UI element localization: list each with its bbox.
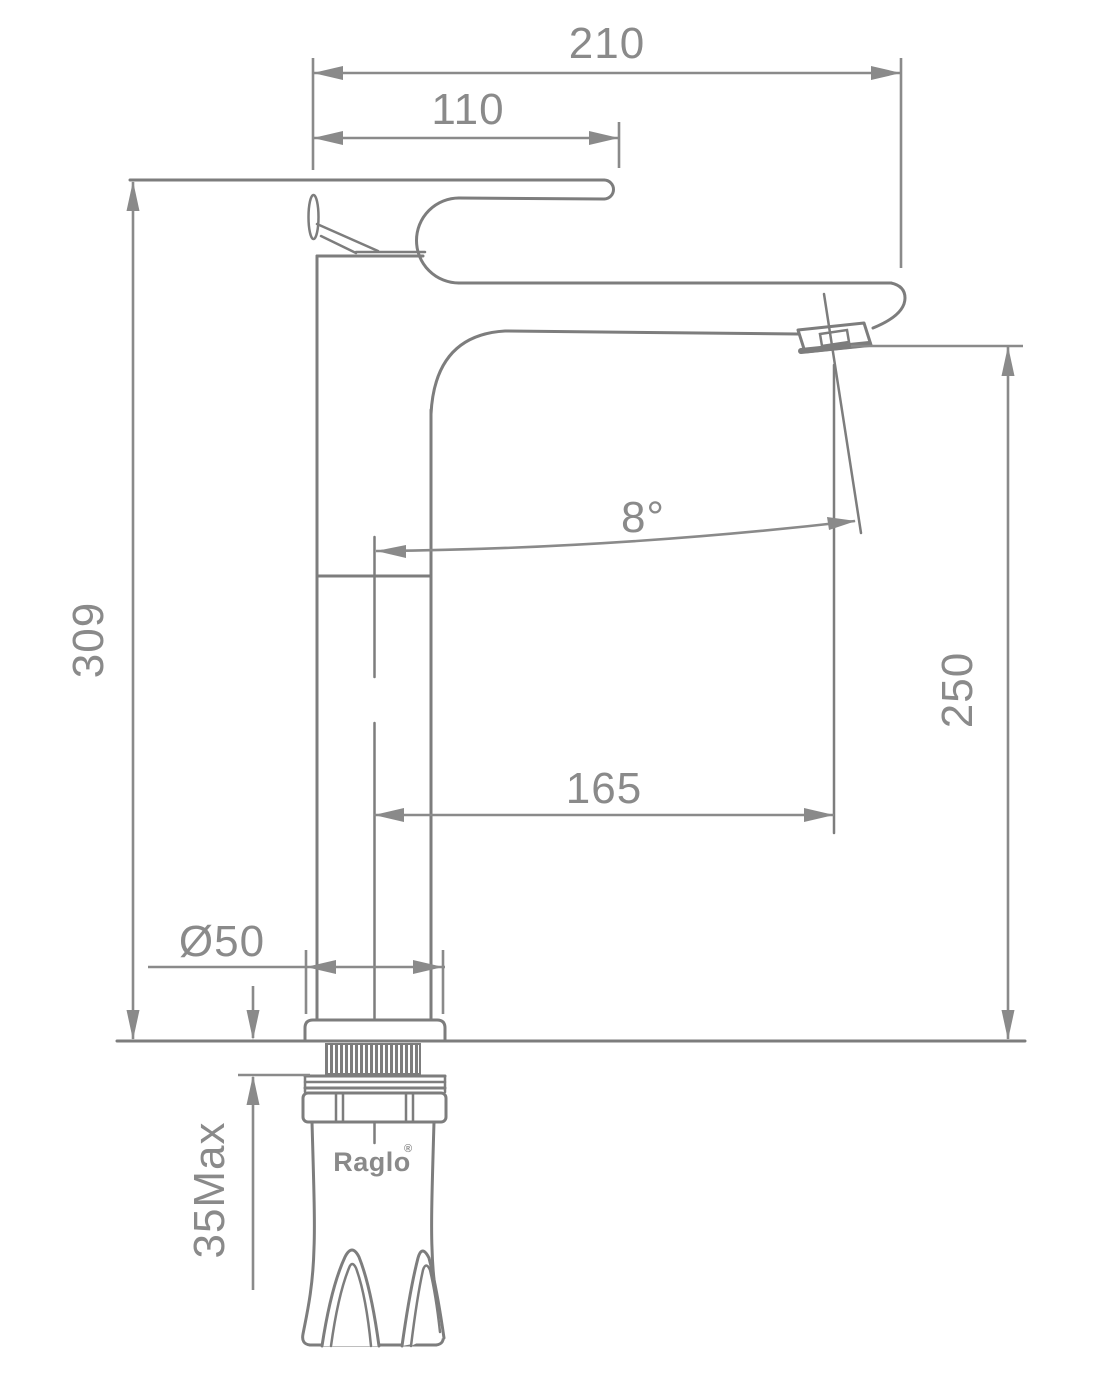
dim-110-arrow-left [313,131,343,145]
dim-210-arrow-left [313,66,343,80]
dim-250-arrow-top [1002,346,1015,376]
handle-underside [459,198,604,199]
dim-250-arrow-bottom [1002,1010,1015,1040]
lock-nut [303,1093,446,1122]
brand-registered-mark: ® [404,1143,412,1155]
dim-angle-arrow-right [827,517,856,530]
dimension-overall-length: 210 [313,19,901,268]
spout-underside [431,331,798,414]
dim-165-arrow-left [374,808,404,822]
spout-tip-curve [873,283,905,328]
handle-body-curve [417,198,460,283]
connector-left-edge [303,1122,315,1345]
dimension-total-height: 309 [64,181,140,1040]
dim-309-arrow-top [127,181,140,211]
dim-165-arrow-right [804,808,834,822]
dimension-spout-height: 250 [851,346,1023,1040]
dimension-spout-angle: 8° [376,493,856,558]
dim-309-arrow-bottom [127,1010,140,1040]
dim-35max-arrow-down [247,1010,260,1040]
base-flange [305,1020,445,1041]
dim-165-label: 165 [566,764,642,813]
faucet-dimension-drawing: Raglo ® 210 110 309 250 [0,0,1099,1377]
dim-110-arrow-right [589,131,619,145]
dim-250-label: 250 [933,652,982,728]
dim-210-label: 210 [569,19,645,68]
dimension-deck-thickness: 35Max [185,986,310,1290]
dim-d50-label: Ø50 [179,917,265,966]
brand-logo: Raglo [333,1147,411,1177]
dimension-base-diameter: Ø50 [148,917,445,1014]
dim-309-label: 309 [64,602,113,678]
dimension-spout-reach: 165 [374,764,834,822]
handle-back-lens [309,195,319,239]
faucet-base: Raglo ® [303,1020,446,1346]
dim-angle-arc [376,521,855,551]
technical-drawing-page: Raglo ® 210 110 309 250 [0,0,1099,1377]
faucet-outline [130,180,905,1020]
dimension-handle-length: 110 [313,85,619,168]
dim-35max-label: 35Max [185,1121,234,1258]
dim-angle-arrow-left [376,545,406,558]
dim-d50-arrow-left [306,960,336,974]
handle-end-cap [604,180,614,199]
dim-110-label: 110 [431,85,504,134]
dim-d50-arrow-right [413,960,443,974]
dim-210-arrow-right [871,66,901,80]
dim-35max-arrow-up [247,1075,260,1105]
dim-angle-label: 8° [621,493,665,542]
threaded-shank [326,1044,420,1074]
